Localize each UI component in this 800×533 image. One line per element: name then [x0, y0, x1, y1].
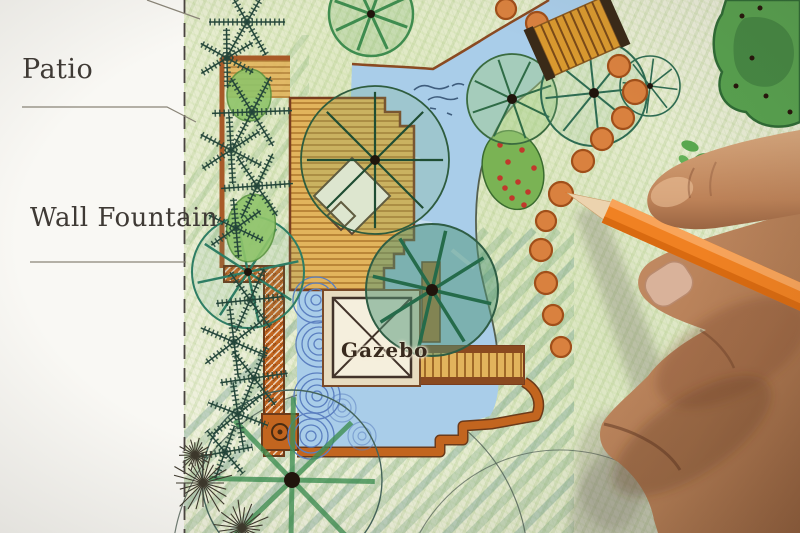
- photo-of-landscape-plan: Patio Wall Fountain Gazebo: [0, 0, 800, 533]
- index-finger: [647, 130, 800, 229]
- hand-with-pencil: [0, 0, 800, 533]
